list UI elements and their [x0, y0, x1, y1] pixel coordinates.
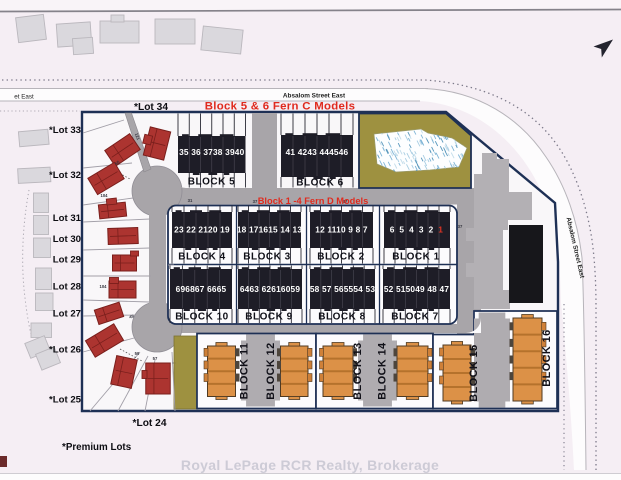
- svg-text:BLOCK 1: BLOCK 1: [392, 252, 439, 263]
- svg-text:BLOCK 15: BLOCK 15: [468, 344, 480, 401]
- svg-text:BLOCK 14: BLOCK 14: [377, 342, 389, 399]
- svg-text:52 515049 48 47: 52 515049 48 47: [384, 284, 449, 294]
- svg-text:18 171615 14 13: 18 171615 14 13: [237, 225, 302, 235]
- svg-text:Lot 27: Lot 27: [53, 309, 81, 320]
- svg-text:BLOCK 10: BLOCK 10: [175, 312, 228, 323]
- svg-text:et East: et East: [14, 94, 34, 101]
- svg-text:104: 104: [100, 284, 108, 289]
- svg-text:Royal LePage RCR Realty, Broke: Royal LePage RCR Realty, Brokerage: [181, 457, 439, 473]
- svg-text:104: 104: [101, 193, 109, 198]
- svg-text:Block 5 & 6 Fern C Models: Block 5 & 6 Fern C Models: [205, 101, 356, 113]
- svg-text:59: 59: [135, 351, 140, 356]
- svg-text:BLOCK 16: BLOCK 16: [541, 329, 553, 386]
- svg-text:Absalom Street East: Absalom Street East: [283, 93, 346, 100]
- svg-text:*Lot 25: *Lot 25: [49, 395, 82, 406]
- svg-text:BLOCK 11: BLOCK 11: [239, 343, 251, 400]
- svg-text:BLOCK 9: BLOCK 9: [245, 312, 292, 323]
- svg-text:696867 6665: 696867 6665: [176, 284, 227, 294]
- svg-text:*Lot 34: *Lot 34: [134, 102, 168, 113]
- svg-text:Lot 28: Lot 28: [53, 282, 82, 293]
- svg-text:Lot 31: Lot 31: [53, 213, 82, 224]
- svg-text:58 57 565554 53: 58 57 565554 53: [310, 284, 375, 294]
- svg-text:*Lot 26: *Lot 26: [49, 345, 81, 356]
- svg-text:BLOCK 2: BLOCK 2: [317, 252, 364, 263]
- svg-text:BLOCK 7: BLOCK 7: [391, 312, 438, 323]
- svg-text:23 22 2120 19: 23 22 2120 19: [174, 225, 230, 235]
- svg-text:BLOCK 12: BLOCK 12: [265, 342, 277, 399]
- svg-text:37: 37: [458, 224, 463, 229]
- svg-text:BLOCK 3: BLOCK 3: [243, 252, 290, 263]
- svg-text:*Premium Lots: *Premium Lots: [62, 442, 132, 453]
- svg-text:6 5 4 3 2 1: 6 5 4 3 2 1: [390, 225, 445, 235]
- svg-text:6463 62616059: 6463 62616059: [240, 284, 300, 294]
- svg-text:BLOCK 5: BLOCK 5: [188, 177, 235, 188]
- svg-text:BLOCK 4: BLOCK 4: [178, 252, 225, 263]
- svg-text:BLOCK 6: BLOCK 6: [296, 178, 343, 189]
- svg-text:BLOCK 13: BLOCK 13: [352, 342, 364, 399]
- svg-text:*Lot 33: *Lot 33: [49, 125, 81, 136]
- svg-text:Block 1 -4 Fern D Models: Block 1 -4 Fern D Models: [258, 196, 369, 206]
- svg-text:12 1110 9 8 7: 12 1110 9 8 7: [315, 225, 368, 235]
- svg-text:31: 31: [188, 198, 193, 203]
- svg-text:41 4243 444546: 41 4243 444546: [286, 147, 349, 157]
- svg-text:35 36 3738 3940: 35 36 3738 3940: [179, 147, 244, 157]
- svg-text:Lot 30: Lot 30: [53, 234, 81, 245]
- svg-text:*Lot 32: *Lot 32: [49, 170, 81, 181]
- svg-text:BLOCK 8: BLOCK 8: [318, 312, 365, 323]
- svg-text:*Lot 24: *Lot 24: [133, 418, 167, 429]
- svg-text:57: 57: [153, 356, 158, 361]
- svg-text:Lot 29: Lot 29: [53, 255, 81, 266]
